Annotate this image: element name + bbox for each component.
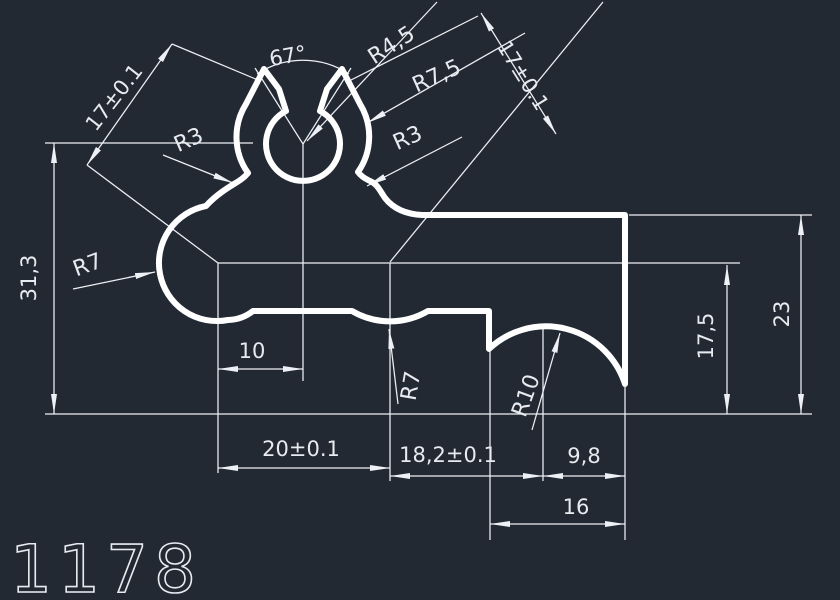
label-10: 10 bbox=[239, 339, 266, 363]
label-9-8: 9,8 bbox=[567, 444, 600, 468]
label-18-2: 18,2±0.1 bbox=[399, 443, 497, 467]
technical-drawing: 31,3 17±0.1 17±0.1 67° R4,5 R7,5 R3 R3 R… bbox=[0, 0, 840, 600]
cad-canvas: 31,3 17±0.1 17±0.1 67° R4,5 R7,5 R3 R3 R… bbox=[0, 0, 840, 600]
label-r7-valley: R7 bbox=[397, 369, 427, 402]
label-31-3: 31,3 bbox=[17, 255, 41, 302]
label-20: 20±0.1 bbox=[262, 437, 340, 461]
part-number: 1178 bbox=[10, 531, 202, 600]
label-23: 23 bbox=[770, 301, 794, 328]
label-16: 16 bbox=[563, 495, 590, 519]
label-17-5: 17,5 bbox=[694, 313, 718, 360]
